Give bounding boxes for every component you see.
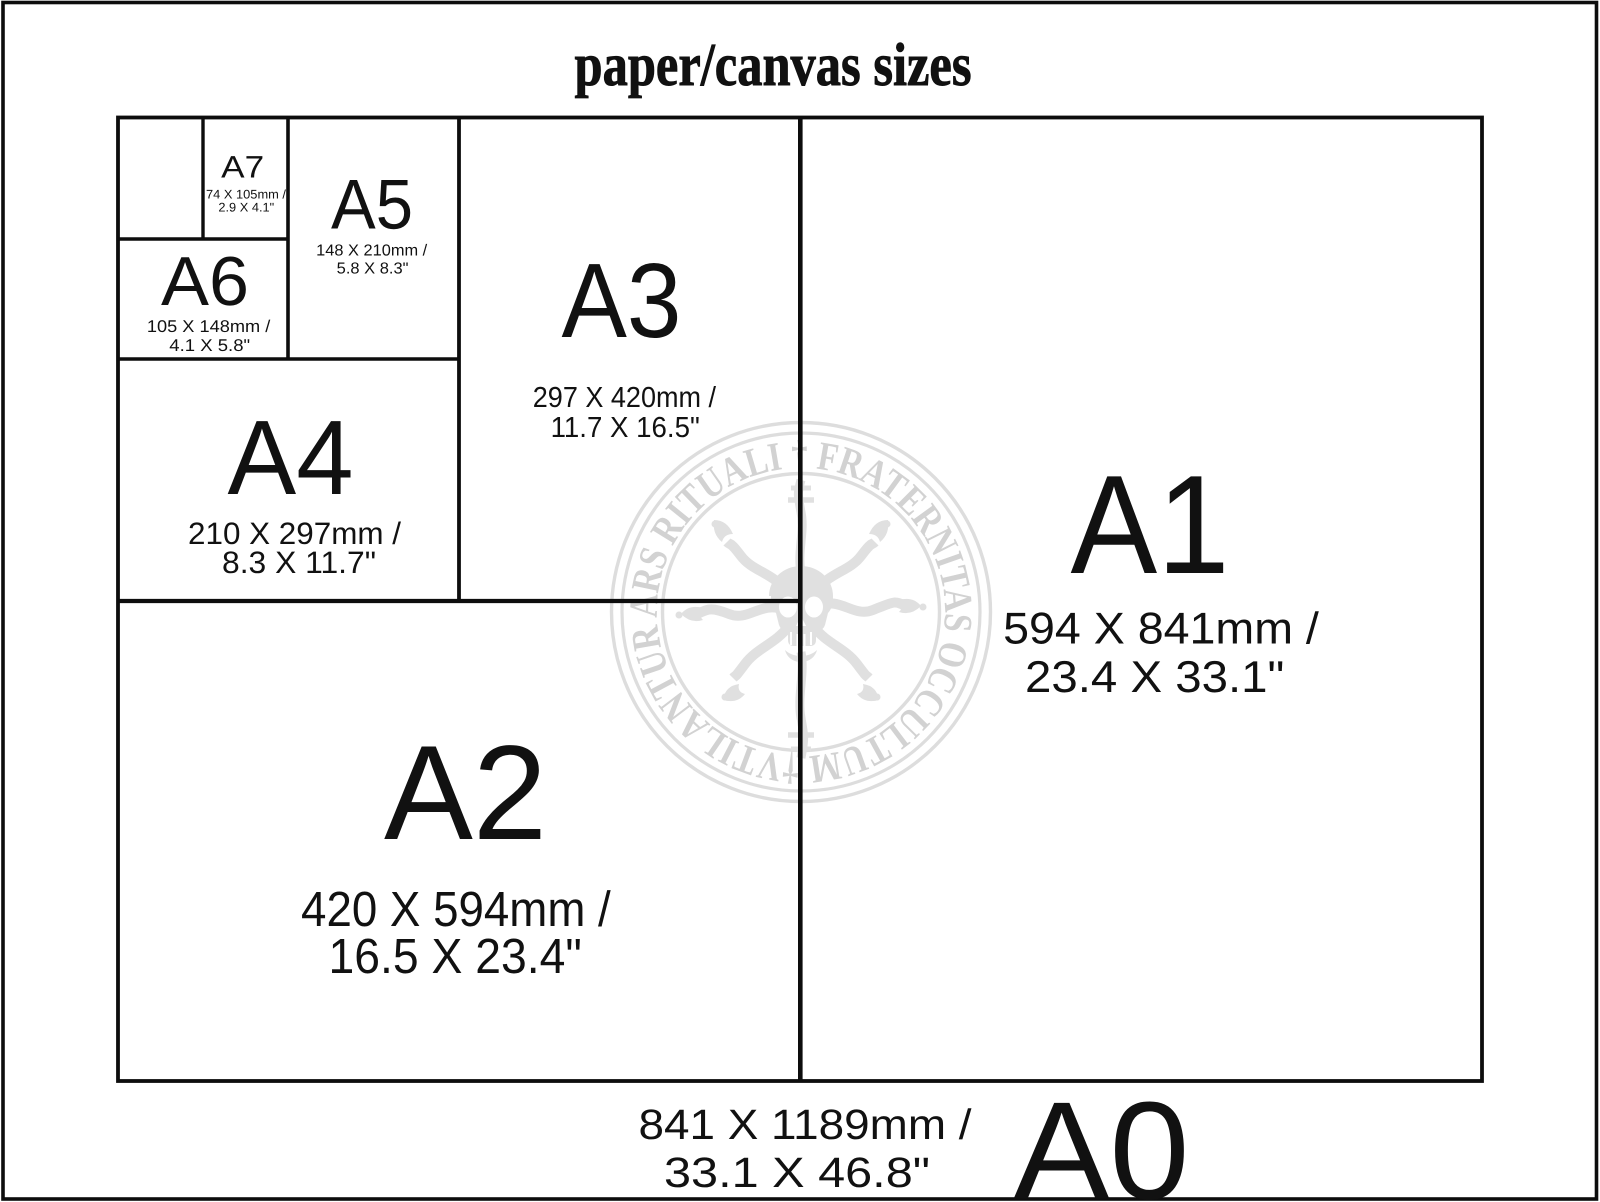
svg-text:2.9 X 4.1": 2.9 X 4.1" [218,200,274,214]
svg-text:105 X 148mm /: 105 X 148mm / [147,317,271,336]
svg-text:33.1 X 46.8": 33.1 X 46.8" [664,1150,930,1197]
svg-text:841 X 1189mm /: 841 X 1189mm / [639,1102,972,1149]
svg-text:A2: A2 [384,717,547,868]
svg-text:11.7 X 16.5": 11.7 X 16.5" [551,412,700,444]
svg-text:23.4 X 33.1": 23.4 X 33.1" [1025,653,1284,702]
svg-text:594 X 841mm /: 594 X 841mm / [1003,605,1319,654]
svg-text:4.1 X 5.8": 4.1 X 5.8" [169,336,250,355]
svg-text:297 X 420mm /: 297 X 420mm / [533,382,717,414]
svg-text:A3: A3 [562,242,682,360]
svg-text:5.8 X 8.3": 5.8 X 8.3" [337,261,409,278]
svg-text:A4: A4 [228,399,354,517]
svg-text:A6: A6 [161,242,249,320]
svg-text:16.5 X 23.4": 16.5 X 23.4" [329,929,582,984]
svg-text:A0: A0 [1014,1074,1190,1202]
svg-text:148 X 210mm /: 148 X 210mm / [316,243,428,260]
svg-text:8.3 X 11.7": 8.3 X 11.7" [222,545,376,580]
svg-text:A5: A5 [331,165,413,244]
svg-text:paper/canvas sizes: paper/canvas sizes [575,32,972,99]
svg-text:A7: A7 [221,150,264,185]
svg-text:A1: A1 [1071,446,1230,603]
